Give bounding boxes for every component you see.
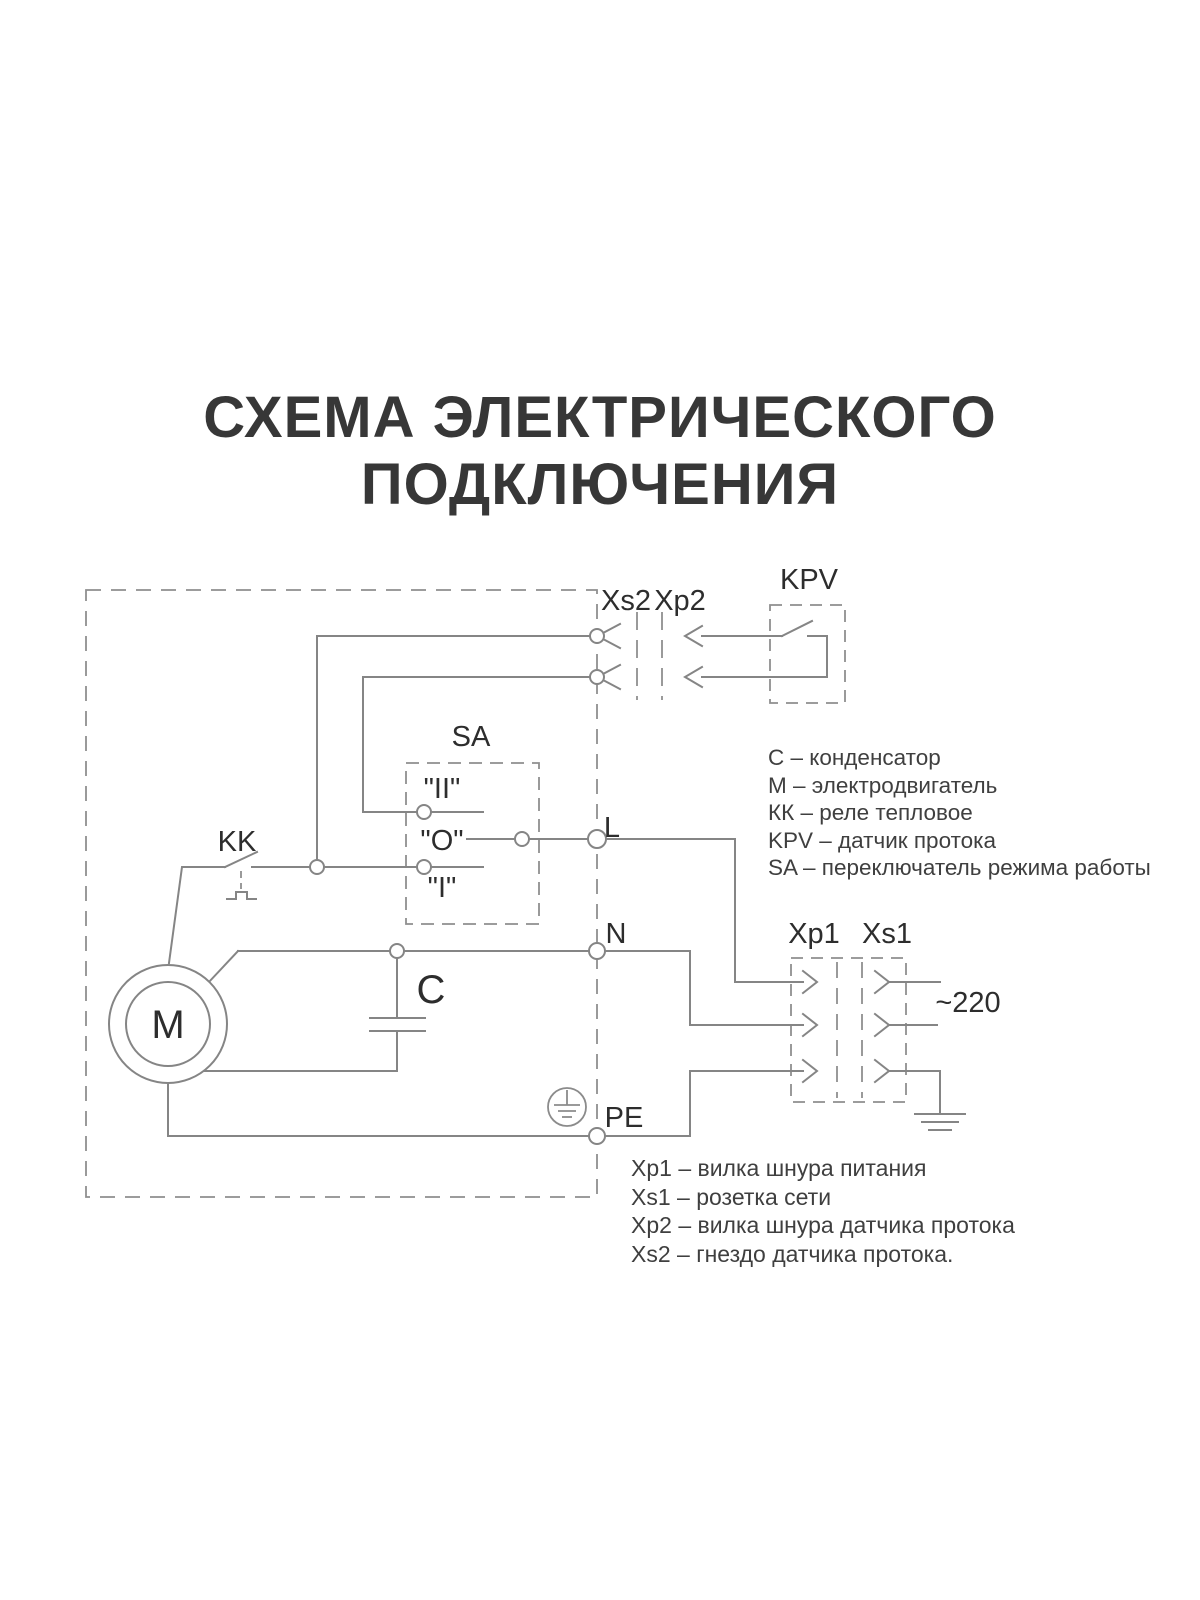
- wire-n-to-xp1: [597, 951, 803, 1025]
- pe-earth-symbol: [548, 1088, 586, 1126]
- terminals: [310, 629, 606, 1144]
- label-motor: M: [151, 1003, 184, 1047]
- label-kpv: KPV: [780, 564, 839, 596]
- label-pe: PE: [605, 1102, 644, 1134]
- legend-item-xs1: Xs1 – розетка сети: [631, 1183, 1015, 1212]
- kpv-sensor-box: [770, 605, 845, 703]
- wire-xs1-earth: [889, 1071, 940, 1114]
- kpv-switch-symbol: [702, 621, 827, 677]
- wire-motor-to-pe: [168, 1083, 597, 1136]
- label-l: L: [604, 812, 620, 844]
- label-sa: SA: [452, 721, 491, 753]
- label-xp1: Xp1: [788, 918, 840, 950]
- xs1-contact-icons: [875, 971, 889, 1082]
- legend-item-xp1: Xp1 – вилка шнура питания: [631, 1154, 1015, 1183]
- label-capacitor: C: [417, 968, 446, 1012]
- label-position-ii: "II": [424, 773, 461, 805]
- wire-motor-upper-lead: [208, 951, 238, 983]
- legend-item-capacitor: С – конденсатор: [768, 744, 1151, 772]
- legend-item-thermal-relay: КК – реле тепловое: [768, 799, 1151, 827]
- label-position-i: "I": [428, 872, 457, 904]
- legend-item-flow-sensor: KPV – датчик протока: [768, 827, 1151, 855]
- label-kk: KK: [218, 826, 257, 858]
- terminal-pe: [589, 1128, 605, 1144]
- page: СХЕМА ЭЛЕКТРИЧЕСКОГО ПОДКЛЮЧЕНИЯ: [0, 0, 1200, 1600]
- sa-contact-ii: [417, 805, 431, 819]
- wire-motor-to-kk: [169, 867, 225, 963]
- xp1-pin-icons: [803, 971, 817, 1082]
- sensor-connector-faces: [637, 612, 662, 700]
- label-xs2: Xs2: [601, 585, 651, 617]
- legend-components: С – конденсатор М – электродвигатель КК …: [768, 744, 1151, 882]
- kk-thermal-element-symbol: [227, 892, 256, 899]
- terminal-n: [589, 943, 605, 959]
- junction-capacitor: [390, 944, 404, 958]
- capacitor-symbol: [204, 951, 425, 1071]
- earth-ground-symbol: [915, 1114, 965, 1130]
- xs2-socket-prongs: [603, 624, 620, 689]
- legend-item-motor: М – электродвигатель: [768, 772, 1151, 800]
- legend-item-mode-switch: SA – переключатель режима работы: [768, 854, 1151, 882]
- label-xs1: Xs1: [862, 918, 912, 950]
- sa-contact-o: [515, 832, 529, 846]
- label-n: N: [606, 918, 627, 950]
- label-voltage: ~220: [935, 987, 1000, 1019]
- terminal-xs2-1: [590, 629, 604, 643]
- legend-connectors: Xp1 – вилка шнура питания Xs1 – розетка …: [631, 1154, 1015, 1268]
- label-position-o: "O": [420, 825, 463, 857]
- power-connector-box: [791, 958, 906, 1102]
- legend-item-xp2: Xp2 – вилка шнура датчика протока: [631, 1211, 1015, 1240]
- label-xp2: Xp2: [654, 585, 706, 617]
- terminal-xs2-2: [590, 670, 604, 684]
- device-boundary-box: [86, 590, 597, 1197]
- xp2-pin-icons: [685, 626, 702, 687]
- junction-kk: [310, 860, 324, 874]
- legend-item-xs2: Xs2 – гнездо датчика протока.: [631, 1240, 1015, 1269]
